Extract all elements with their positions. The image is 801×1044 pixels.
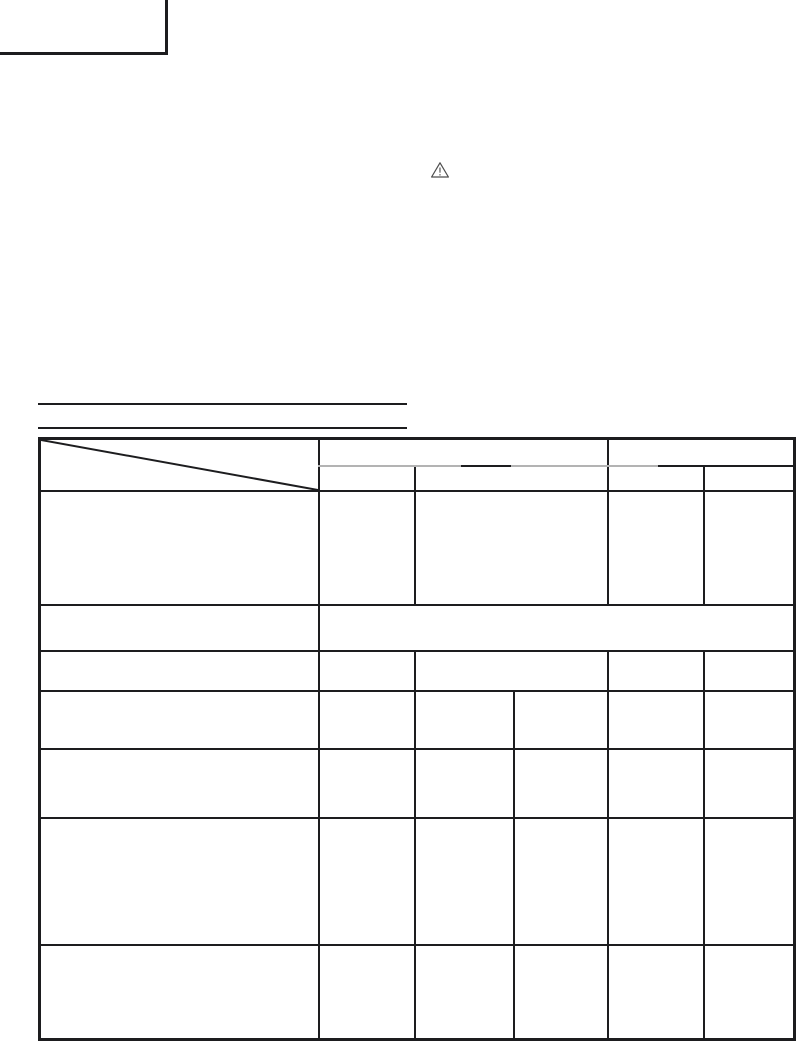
- warning-triangle-icon: !: [430, 161, 450, 179]
- warning-exclamation-glyph: !: [438, 166, 442, 178]
- table-row-7-label-cell: [41, 946, 318, 1038]
- table-row-6-label-cell: [41, 819, 318, 944]
- table-row-4-label-cell: [41, 692, 318, 748]
- table-column-divider-c1-body: [414, 650, 416, 1038]
- heading-underline-2: [38, 427, 407, 429]
- spec-table: [38, 437, 796, 1041]
- table-row-3-label-cell: [41, 652, 318, 690]
- table-header-corner-cell: [41, 440, 318, 490]
- table-header-subcol-3: [609, 467, 703, 490]
- table-header-subcol-2: [416, 467, 607, 490]
- table-column-divider-c3-body: [703, 650, 705, 1038]
- table-header-group-2: [609, 440, 793, 465]
- document-page: !: [0, 0, 801, 1044]
- table-row-5-label-cell: [41, 750, 318, 817]
- table-row-2-label-cell: [41, 606, 318, 650]
- table-column-divider-c0: [318, 440, 320, 1038]
- heading-underline-1: [38, 403, 407, 405]
- table-column-divider-group-body: [607, 650, 609, 1038]
- title-block-box: [0, 0, 168, 55]
- table-column-divider-c1b-body: [513, 690, 515, 1038]
- table-header-subcol-4: [705, 467, 793, 490]
- table-row-2-span-cell: [320, 606, 793, 650]
- table-row-1-label-cell: [41, 492, 318, 604]
- table-header-subcol-1: [320, 467, 414, 490]
- table-header-group-1: [320, 440, 607, 465]
